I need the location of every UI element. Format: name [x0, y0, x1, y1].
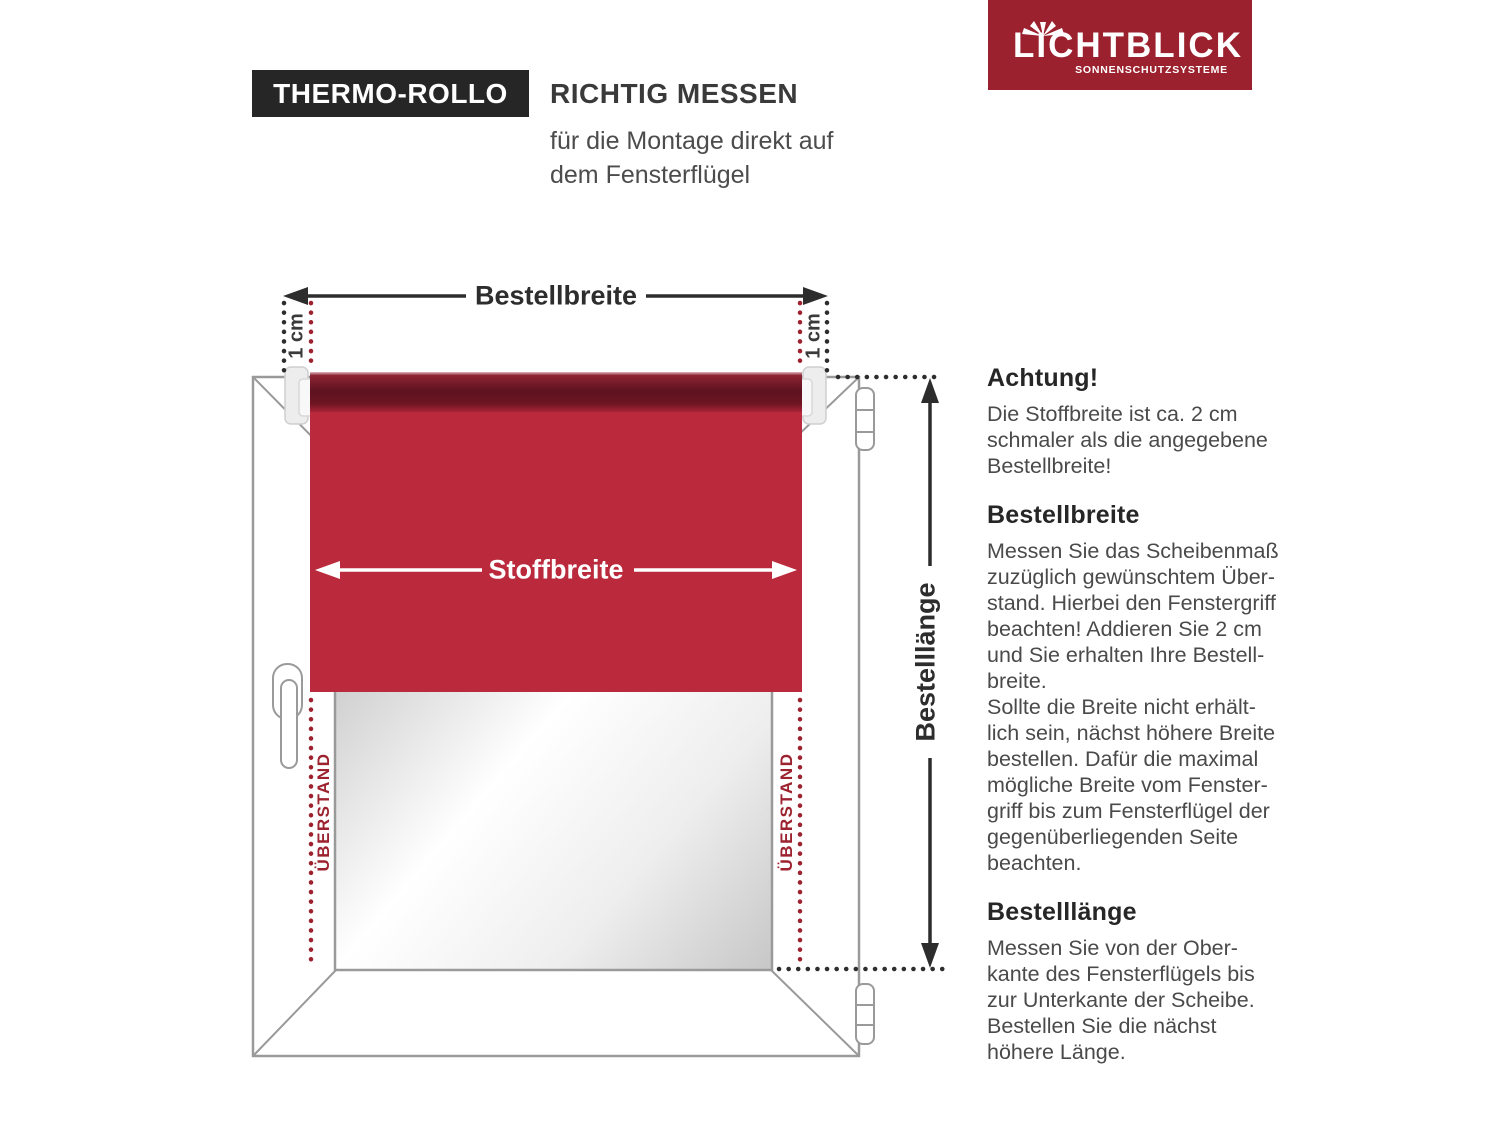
overhang-label-left: ÜBERSTAND [314, 753, 334, 872]
hinge-top-icon [856, 388, 874, 450]
info-column: Achtung! Die Stoffbreite ist ca. 2 cm sc… [987, 364, 1287, 1087]
margin-label-left: 1 cm [286, 313, 309, 359]
order-length-label: Bestelllänge [911, 582, 942, 741]
info-section-bestelllaenge: Bestelllänge Messen Sie von der Ober- ka… [987, 898, 1287, 1065]
section-heading: Bestelllänge [987, 898, 1287, 927]
infographic-page: THERMO-ROLLO RICHTIG MESSEN für die Mont… [0, 0, 1500, 1125]
overhang-label-right: ÜBERSTAND [777, 753, 797, 872]
section-body: Die Stoffbreite ist ca. 2 cm schmaler al… [987, 401, 1287, 479]
section-body: Messen Sie von der Ober- kante des Fenst… [987, 935, 1287, 1065]
info-section-achtung: Achtung! Die Stoffbreite ist ca. 2 cm sc… [987, 364, 1287, 479]
info-section-bestellbreite: Bestellbreite Messen Sie das Scheibenmaß… [987, 501, 1287, 876]
order-width-label: Bestellbreite [475, 281, 637, 312]
margin-label-right: 1 cm [803, 313, 826, 359]
section-heading: Achtung! [987, 364, 1287, 393]
roller-tube [310, 372, 802, 414]
bracket-left [285, 367, 314, 424]
section-heading: Bestellbreite [987, 501, 1287, 530]
fabric-panel [310, 412, 802, 692]
hinge-bottom-icon [856, 984, 874, 1044]
section-body: Messen Sie das Scheibenmaß zuzüglich gew… [987, 538, 1287, 876]
fabric-width-label: Stoffbreite [489, 555, 624, 586]
